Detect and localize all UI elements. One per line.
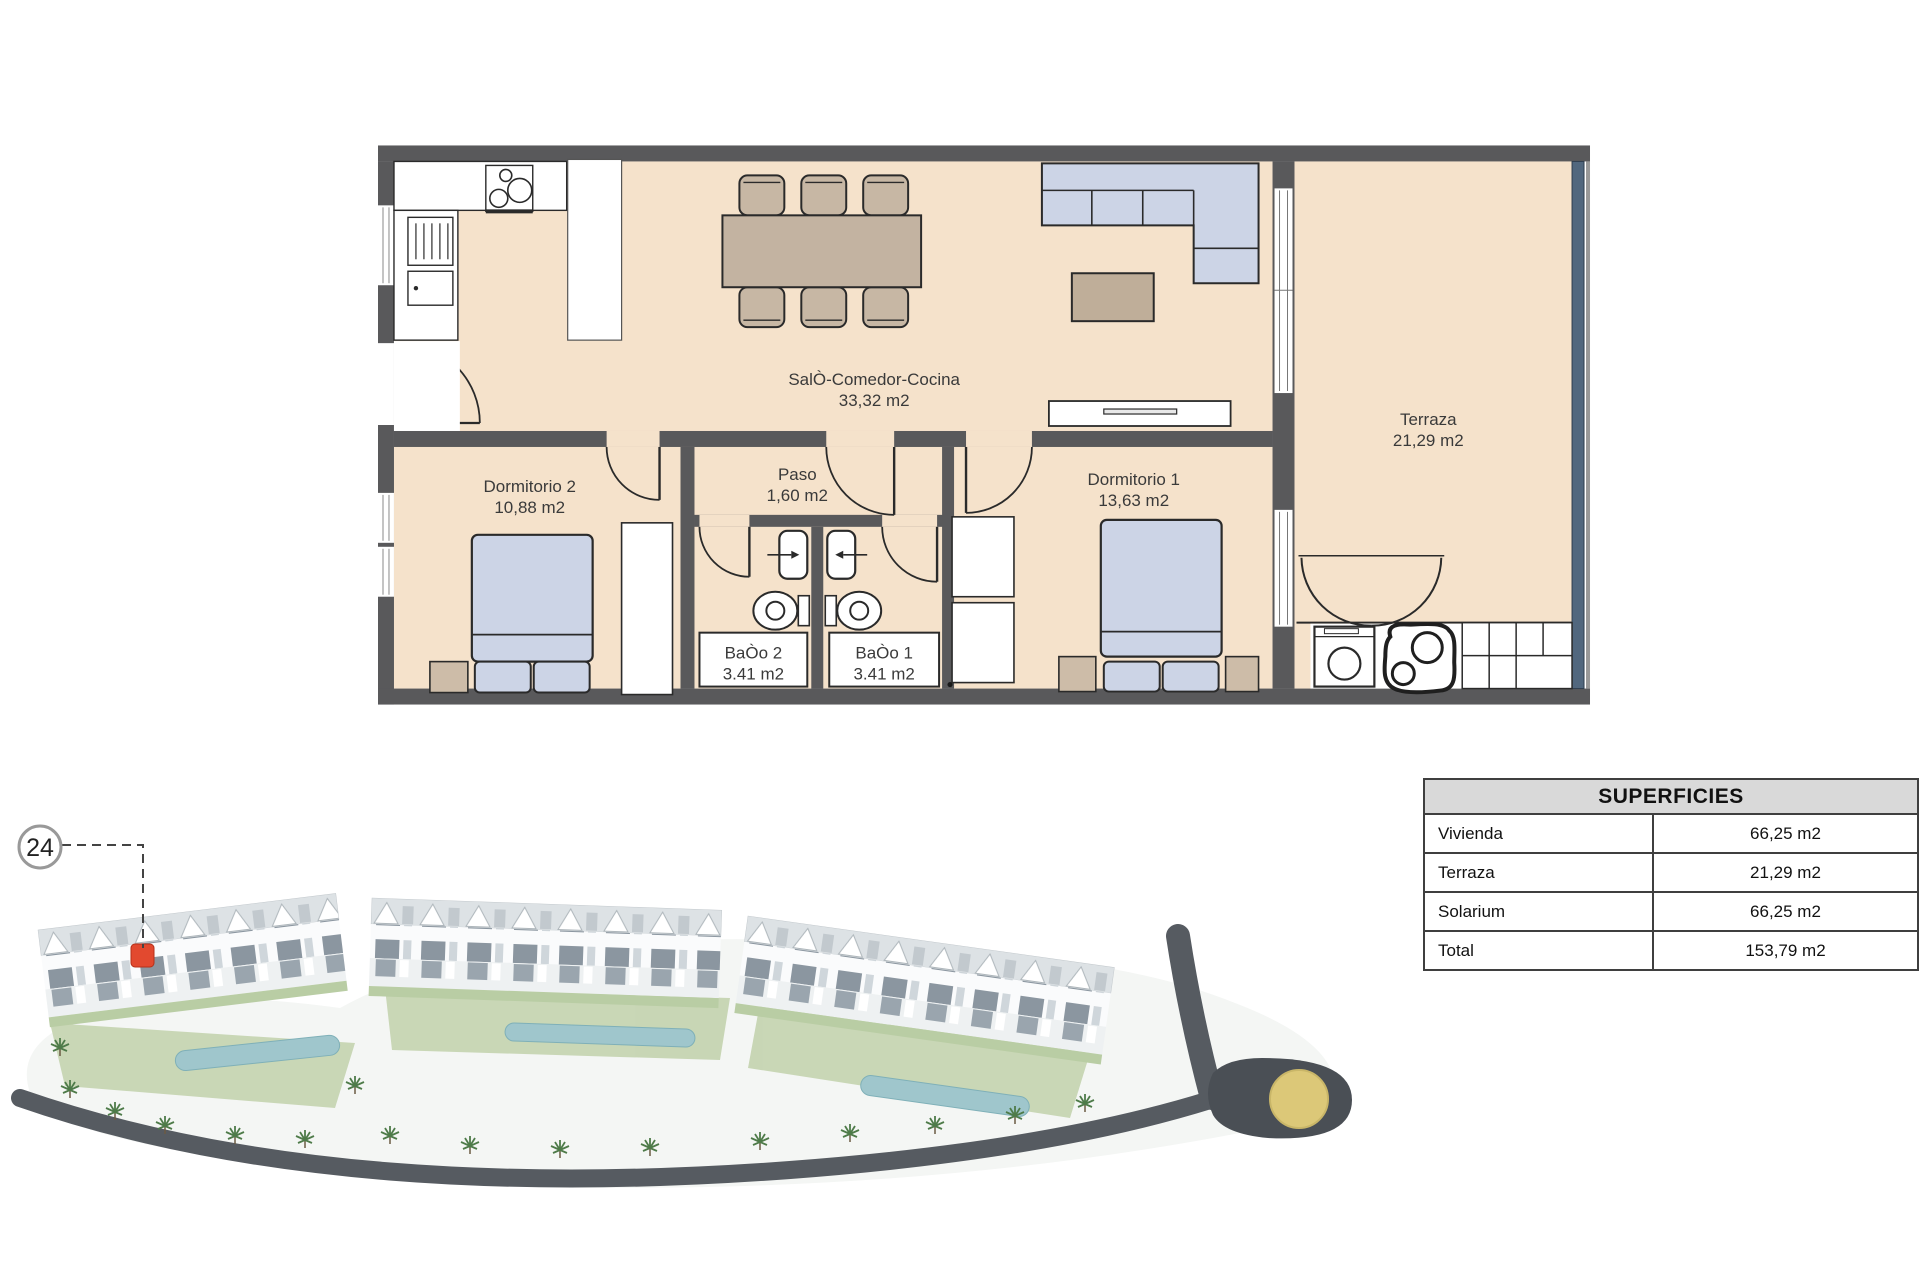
room-label-dormitorio2: Dormitorio 2: [484, 477, 576, 496]
svg-text:1,60 m2: 1,60 m2: [767, 486, 828, 505]
row-value: 66,25 m2: [1654, 893, 1917, 930]
svg-text:33,32 m2: 33,32 m2: [839, 391, 910, 410]
dining-set: [722, 175, 921, 327]
wardrobe: [952, 603, 1014, 683]
table-row: Vivienda 66,25 m2: [1425, 815, 1917, 854]
room-label-terraza: Terraza: [1400, 410, 1457, 429]
dining-table: [722, 215, 921, 287]
coffee-table: [1072, 273, 1154, 321]
row-label: Vivienda: [1425, 815, 1654, 852]
row-value: 153,79 m2: [1654, 932, 1917, 969]
room-label-bano1: BaÒo 1: [855, 644, 913, 663]
superficies-table: SUPERFICIES Vivienda 66,25 m2 Terraza 21…: [1423, 778, 1919, 971]
tv-console: [1049, 401, 1231, 426]
room-label-dormitorio1: Dormitorio 1: [1088, 470, 1180, 489]
row-value: 66,25 m2: [1654, 815, 1917, 852]
row-label: Solarium: [1425, 893, 1654, 930]
room-label-paso: Paso: [778, 465, 817, 484]
wardrobe: [622, 523, 673, 695]
floor-plan: SalÒ-Comedor-Cocina 33,32 m2 Terraza 21,…: [378, 145, 1596, 705]
fridge-column: [568, 159, 622, 340]
table-row: Terraza 21,29 m2: [1425, 854, 1917, 893]
svg-text:3.41 m2: 3.41 m2: [854, 665, 915, 684]
table-row: Total 153,79 m2: [1425, 932, 1917, 969]
apartment-block-middle: [369, 898, 722, 1008]
svg-text:10,88 m2: 10,88 m2: [494, 498, 565, 517]
unit-badge-number: 24: [26, 834, 54, 862]
row-label: Terraza: [1425, 854, 1654, 891]
stairs: [1462, 623, 1572, 689]
row-value: 21,29 m2: [1654, 854, 1917, 891]
svg-text:3.41 m2: 3.41 m2: [723, 665, 784, 684]
washing-machine-icon: [1314, 627, 1374, 687]
room-label-salon: SalÒ-Comedor-Cocina: [788, 370, 960, 389]
glass-railing: [1572, 161, 1584, 688]
wardrobe: [952, 517, 1014, 597]
bedroom1-furniture: [952, 517, 1258, 692]
site-render: 24: [0, 798, 1450, 1210]
room-label-bano2: BaÒo 2: [725, 644, 783, 663]
row-label: Total: [1425, 932, 1654, 969]
svg-text:21,29 m2: 21,29 m2: [1393, 431, 1464, 450]
svg-text:13,63 m2: 13,63 m2: [1098, 491, 1169, 510]
laundry-sink-icon: [1385, 624, 1455, 692]
roundabout-center: [1270, 1070, 1328, 1128]
superficies-title: SUPERFICIES: [1425, 780, 1917, 815]
table-row: Solarium 66,25 m2: [1425, 893, 1917, 932]
